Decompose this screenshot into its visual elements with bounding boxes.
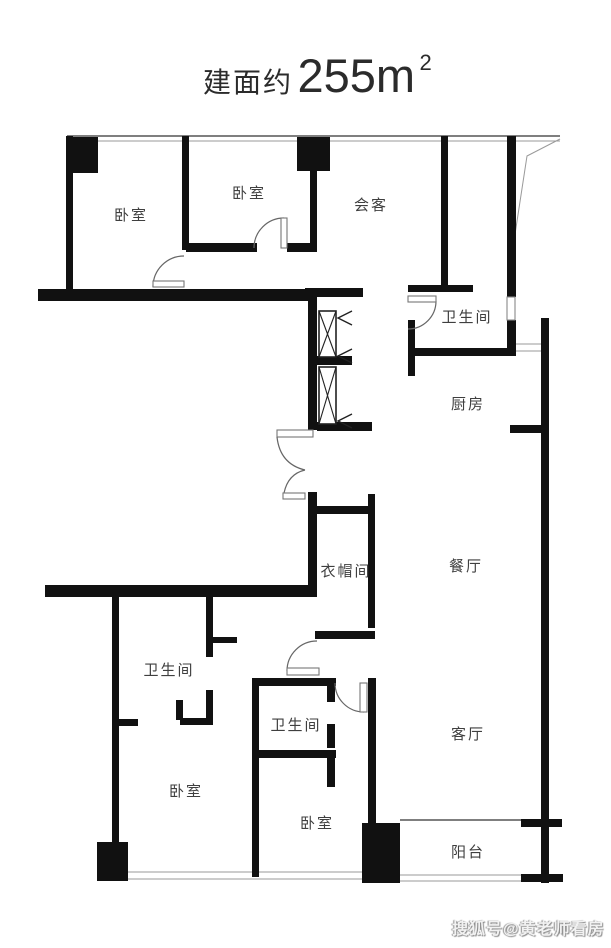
elevator-shaft-icon: [319, 367, 336, 424]
wall: [408, 352, 415, 376]
column: [68, 137, 98, 173]
wall: [213, 637, 237, 643]
room-label-reception: 会客: [354, 197, 388, 214]
wall: [507, 320, 516, 350]
wall: [252, 750, 336, 758]
wall: [441, 136, 448, 287]
wall: [368, 678, 376, 825]
wall: [510, 425, 546, 433]
wall: [327, 758, 335, 787]
wall: [186, 243, 257, 252]
wall: [252, 678, 336, 686]
window-symbol: [507, 297, 515, 320]
room-label-bathroom-middle: 卫生间: [270, 717, 321, 734]
room-label-kitchen: 厨房: [451, 396, 485, 413]
wall: [408, 348, 516, 356]
room-label-cloakroom: 衣帽间: [320, 563, 371, 580]
wall: [408, 285, 473, 292]
angled-wall-line: [510, 139, 560, 267]
wall: [38, 289, 310, 301]
floor-plan: 建面约 255m 2: [0, 0, 611, 948]
room-label-bathroom-left: 卫生间: [143, 662, 194, 679]
wall: [327, 678, 335, 702]
wall: [252, 678, 259, 877]
wall: [310, 167, 317, 248]
wall: [327, 724, 335, 748]
watermark: 搜狐号@黄老师看房: [452, 915, 605, 939]
wall: [305, 288, 363, 297]
room-label-bedroom-bottom-left: 卧室: [169, 783, 203, 800]
room-label-bedroom-top-middle: 卧室: [232, 185, 266, 202]
double-door-swing-icon: [277, 430, 313, 499]
wall: [176, 700, 183, 720]
walls: [38, 136, 563, 883]
room-label-bathroom-top: 卫生间: [441, 309, 492, 326]
floor-plan-image: 建面约 255m 2: [0, 0, 611, 948]
wall: [315, 631, 375, 639]
wall: [115, 719, 138, 726]
title-area-value: 255m: [297, 49, 415, 102]
column: [97, 842, 128, 881]
room-label-living-room: 客厅: [451, 726, 485, 743]
column: [297, 137, 330, 171]
door-swing-icon: [153, 256, 184, 287]
wall: [182, 136, 189, 250]
wall: [521, 874, 563, 882]
elevator-shaft-icon: [319, 311, 336, 357]
wall: [541, 318, 549, 883]
door-swing-icon: [254, 218, 287, 248]
elevator-shafts: [319, 311, 352, 428]
room-label-balcony: 阳台: [451, 844, 485, 861]
door-swing-icon: [335, 683, 367, 712]
wall: [206, 597, 213, 657]
column: [362, 823, 400, 883]
title-prefix: 建面约: [203, 67, 293, 98]
wall: [180, 718, 213, 725]
title-area-superscript: 2: [420, 50, 432, 75]
wall: [507, 136, 516, 297]
wall: [368, 494, 375, 628]
room-label-bedroom-bottom-middle: 卧室: [300, 815, 334, 832]
wall: [45, 585, 313, 597]
page-title: 建面约 255m 2: [203, 49, 432, 102]
room-label-bedroom-top-left: 卧室: [114, 207, 148, 224]
door-swing-icon: [287, 641, 319, 675]
wall: [308, 492, 317, 597]
wall: [206, 690, 213, 722]
wall: [521, 819, 562, 827]
room-label-dining-room: 餐厅: [449, 558, 483, 575]
wall: [317, 506, 375, 514]
elevator-door-arrow-icon: [338, 311, 352, 325]
